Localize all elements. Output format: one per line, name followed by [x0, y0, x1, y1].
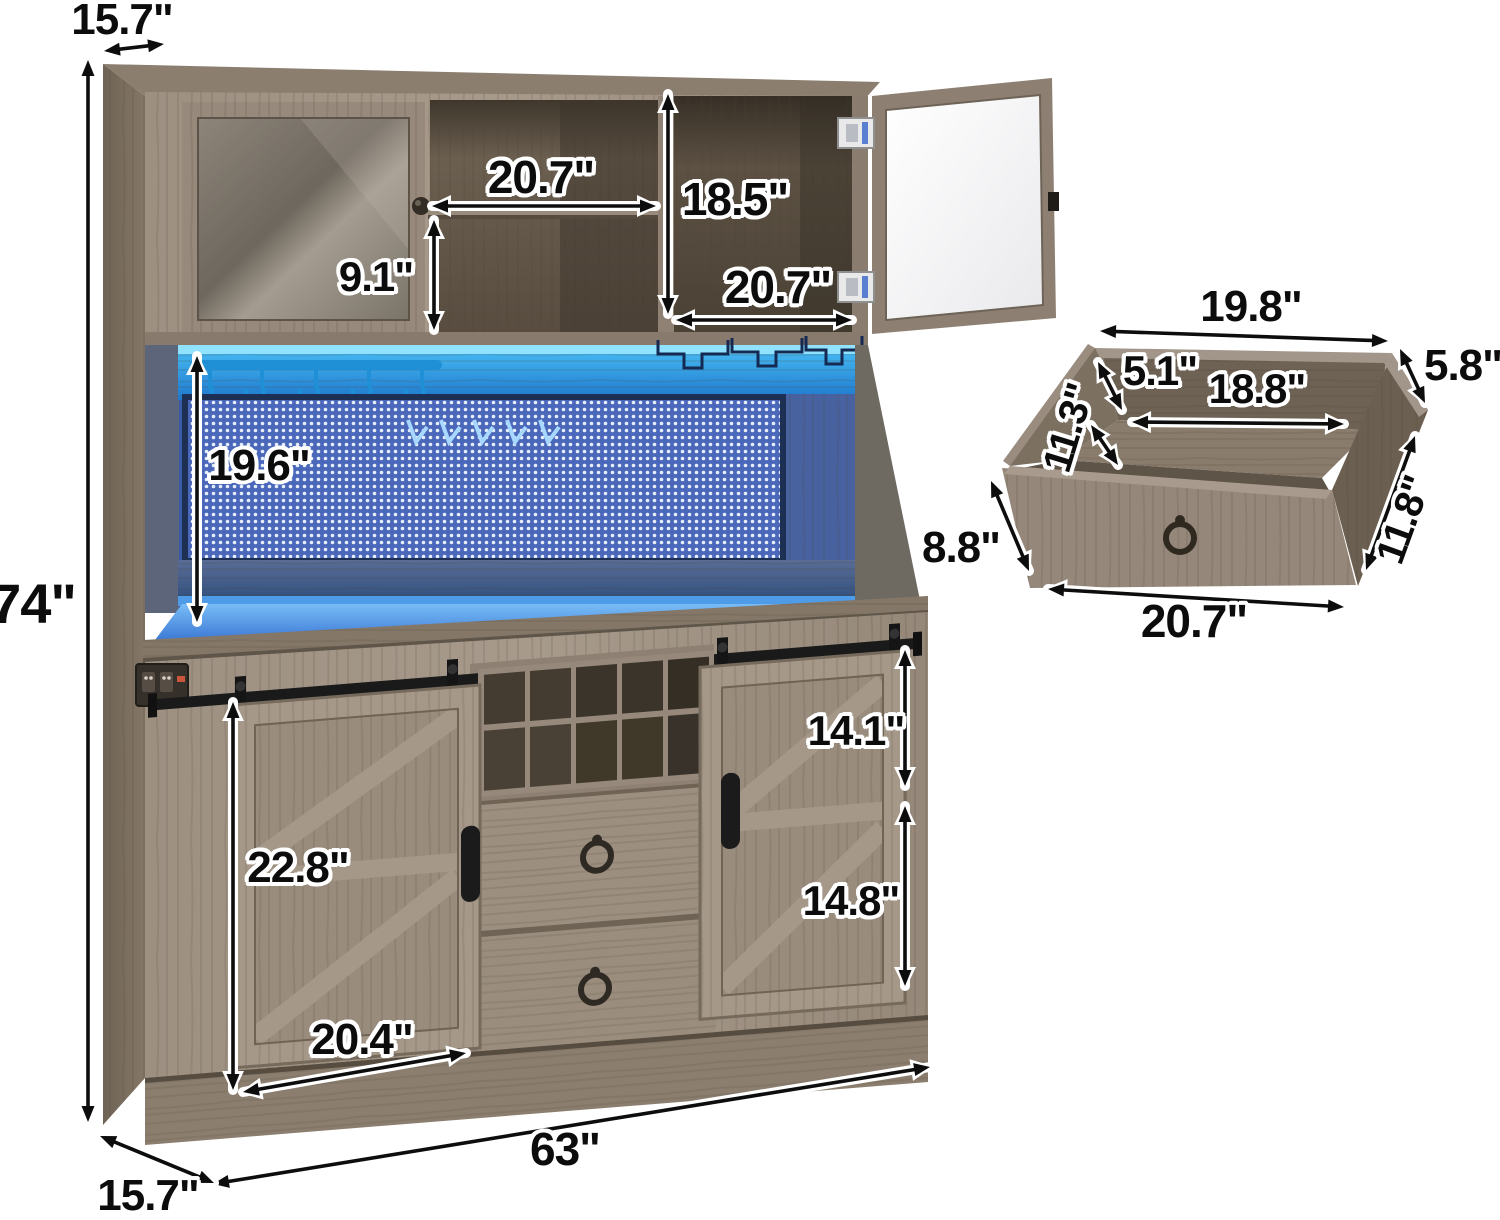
door-handle-left: [461, 825, 480, 903]
dim-door-width: 20.4": [311, 1018, 413, 1062]
hinge-bottom: [838, 272, 874, 302]
hinge-top: [838, 118, 874, 148]
dim-drawer-inner-width: 18.8": [1209, 368, 1306, 410]
dim-right-top-height: 14.1": [808, 710, 905, 752]
dim-door-height: 22.8": [247, 846, 349, 890]
dim-top-depth: 15.7": [71, 0, 173, 42]
dim-hutch-shelf-height: 9.1": [339, 256, 413, 298]
wine-rack: [478, 650, 714, 797]
hutch-cabinets: [145, 78, 1059, 346]
dim-open-height: 19.6": [208, 444, 310, 488]
dim-overall-width: 63": [530, 1126, 600, 1172]
dim-right-bottom-height: 14.8": [803, 880, 900, 922]
hutch-open-glass-door: [838, 78, 1059, 334]
dim-drawer-inner-height: 5.1": [1123, 350, 1197, 392]
hutch-glass-door: [182, 102, 430, 336]
dim-hutch-right-width: 20.7": [725, 264, 831, 310]
dim-drawer-front-height: 8.8": [922, 526, 1000, 570]
dim-drawer-top-width: 19.8": [1200, 285, 1302, 329]
door-handle-right: [721, 772, 740, 850]
center-drawer-top: [478, 782, 716, 931]
hutch-middle-shelf: [428, 100, 660, 336]
dim-hutch-shelf-width: 20.7": [488, 154, 594, 200]
dim-hutch-cabinet-height: 18.5": [682, 176, 788, 222]
dim-overall-height: 74": [0, 576, 76, 632]
dim-drawer-front-width: 20.7": [1141, 598, 1247, 644]
dim-base-depth: 15.7": [97, 1174, 199, 1218]
dimension-diagram: 15.7" 74" 20.7" 18.5" 9.1" 20.7" 19.6" 2…: [0, 0, 1500, 1220]
center-drawer-bottom: [478, 912, 716, 1051]
dim-drawer-wall-height: 5.8": [1424, 344, 1500, 388]
